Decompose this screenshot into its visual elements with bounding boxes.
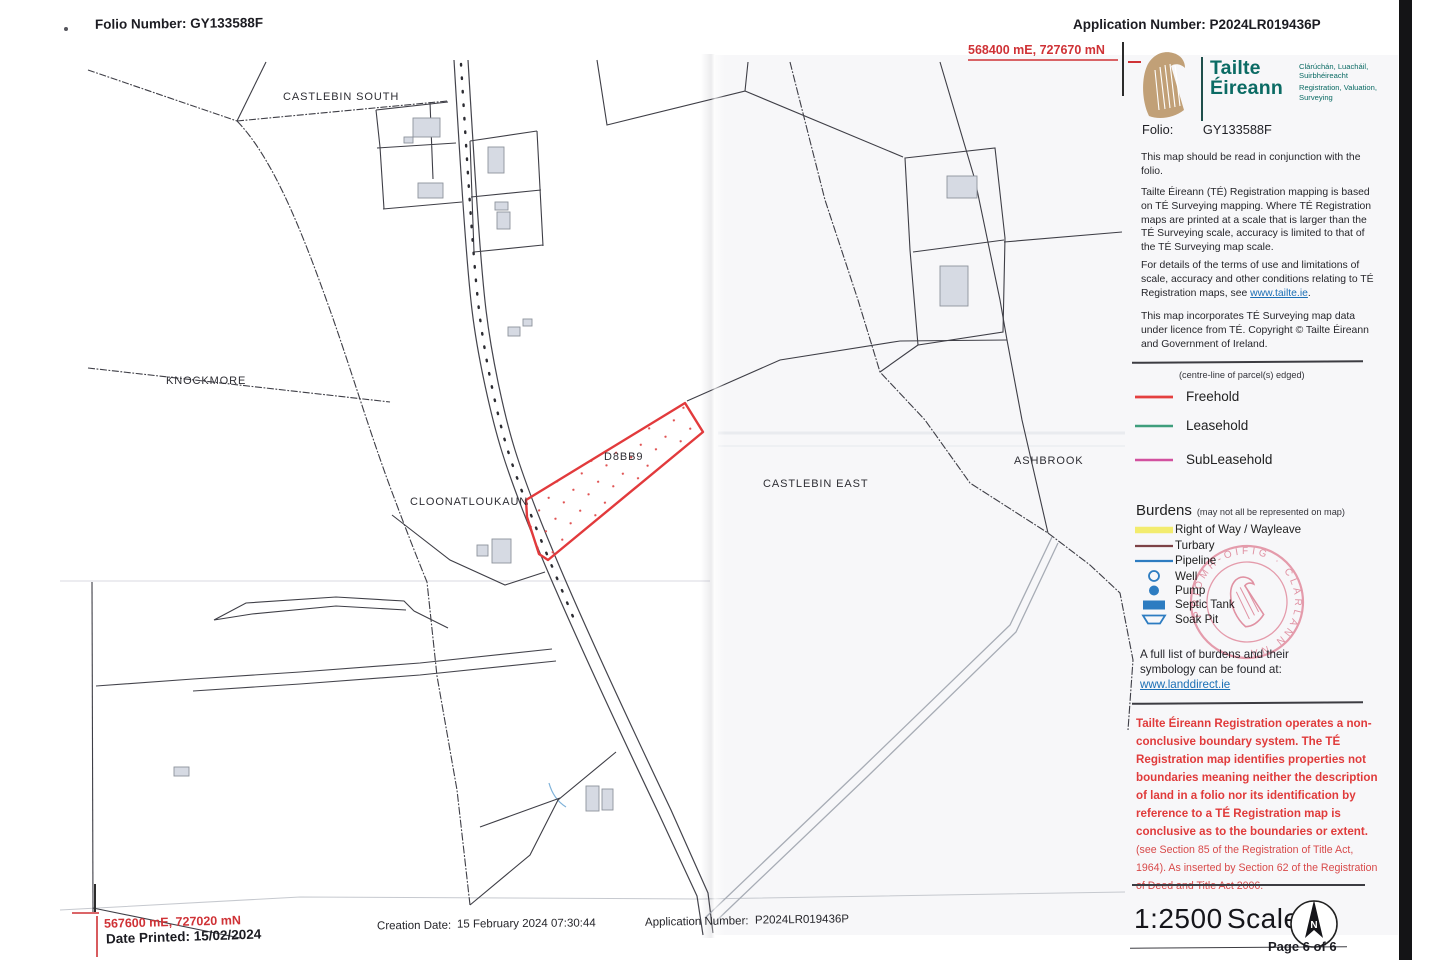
brand-name: Tailte Éireann bbox=[1210, 58, 1283, 98]
footer-application-value: P2024LR019436P bbox=[755, 913, 849, 926]
label-castlebin-south: CASTLEBIN SOUTH bbox=[283, 91, 399, 103]
legend-row-leasehold: Leasehold bbox=[1133, 418, 1248, 433]
application-number-header: Application Number: P2024LR019436P bbox=[1073, 17, 1321, 32]
burdens-footer-line2: symbology can be found at: bbox=[1140, 662, 1289, 677]
warning-bold-text: Tailte Éireann Registration operates a n… bbox=[1136, 717, 1378, 838]
folio-number-header: Folio Number: GY133588F bbox=[95, 15, 263, 32]
legend-label: SubLeasehold bbox=[1186, 452, 1272, 467]
creation-date-label: Creation Date: bbox=[377, 920, 451, 933]
tagline-irish-1: Clárúchán, Luacháil, bbox=[1299, 62, 1377, 71]
legend-row-freehold: Freehold bbox=[1133, 389, 1239, 404]
legend-label: Leasehold bbox=[1186, 418, 1248, 433]
pump-dot-icon bbox=[1134, 584, 1174, 597]
para-copyright: This map incorporates TÉ Surveying map d… bbox=[1141, 310, 1373, 351]
harp-logo-icon bbox=[1140, 52, 1192, 124]
page-number: Page 6 of 6 bbox=[1268, 939, 1337, 954]
brand-name-line1: Tailte bbox=[1210, 58, 1283, 78]
para-conjunction: This map should be read in conjunction w… bbox=[1141, 151, 1373, 179]
leasehold-line-icon bbox=[1133, 422, 1175, 430]
registered-parcel: D8BB9 bbox=[526, 403, 703, 560]
creation-date-value: 15 February 2024 07:30:44 bbox=[457, 917, 596, 930]
footer-application-label: Application Number: bbox=[645, 915, 749, 928]
scanned-map-page: D8BB9 CASTLEBIN SOUTH KNOCKMORE CLOONATL… bbox=[0, 0, 1440, 960]
fold-crease bbox=[701, 54, 725, 938]
burdens-title: Burdens bbox=[1136, 502, 1192, 519]
folio-label: Folio: bbox=[1142, 122, 1173, 137]
north-letter: N bbox=[1310, 920, 1317, 931]
soak-pit-trapezoid-icon bbox=[1134, 614, 1174, 626]
para-terms-period: . bbox=[1308, 288, 1311, 299]
parcel-outline bbox=[526, 403, 703, 560]
burden-label: Right of Way / Wayleave bbox=[1175, 523, 1301, 536]
scale-ratio: 1:2500 bbox=[1134, 903, 1223, 935]
landdirect-link[interactable]: www.landdirect.ie bbox=[1140, 677, 1289, 692]
label-knockmore: KNOCKMORE bbox=[166, 375, 246, 387]
right-of-way-line-icon bbox=[1134, 525, 1174, 535]
turbary-line-icon bbox=[1134, 542, 1174, 550]
folio-value: GY133588F bbox=[1203, 122, 1272, 137]
label-castlebin-east: CASTLEBIN EAST bbox=[763, 478, 869, 490]
burdens-footer-line1: A full list of burdens and their bbox=[1140, 647, 1289, 662]
freehold-line-icon bbox=[1133, 393, 1175, 401]
divider bbox=[1132, 884, 1365, 886]
brand-tagline: Clárúchán, Luacháil, Suirbhéireacht Regi… bbox=[1299, 62, 1377, 102]
folio-row: Folio: GY133588F bbox=[1142, 122, 1272, 137]
burden-row-right-of-way: Right of Way / Wayleave bbox=[1133, 523, 1301, 536]
septic-tank-rect-icon bbox=[1134, 599, 1174, 611]
label-cloonatloukaun: CLOONATLOUKAUN bbox=[410, 496, 528, 508]
boundary-warning: Tailte Éireann Registration operates a n… bbox=[1136, 714, 1379, 894]
centre-line-note: (centre-line of parcel(s) edged) bbox=[1179, 370, 1305, 380]
subleasehold-line-icon bbox=[1133, 456, 1175, 464]
tagline-en-2: Surveying bbox=[1299, 93, 1377, 102]
legend-row-subleasehold: SubLeasehold bbox=[1133, 452, 1272, 467]
burdens-note: (may not all be represented on map) bbox=[1197, 507, 1345, 517]
parcel-label: D8BB9 bbox=[604, 451, 643, 463]
tailte-link[interactable]: www.tailte.ie bbox=[1250, 288, 1308, 299]
tagline-en-1: Registration, Valuation, bbox=[1299, 83, 1377, 92]
logo-divider bbox=[1201, 57, 1203, 121]
brand-name-line2: Éireann bbox=[1210, 78, 1283, 98]
stamp-harp-icon bbox=[1225, 574, 1266, 629]
para-registration: Tailte Éireann (TÉ) Registration mapping… bbox=[1141, 186, 1379, 255]
pipeline-line-icon bbox=[1134, 557, 1174, 565]
para-terms: For details of the terms of use and limi… bbox=[1141, 259, 1379, 300]
well-circle-icon bbox=[1134, 569, 1174, 583]
scanner-edge bbox=[1399, 0, 1412, 960]
label-ashbrook: ASHBROOK bbox=[1014, 455, 1084, 467]
tagline-irish-2: Suirbhéireacht bbox=[1299, 71, 1377, 80]
burdens-footer: A full list of burdens and their symbolo… bbox=[1140, 647, 1289, 692]
legend-label: Freehold bbox=[1186, 389, 1239, 404]
burdens-header: Burdens (may not all be represented on m… bbox=[1136, 502, 1345, 519]
coordinate-top-right: 568400 mE, 727670 mN bbox=[968, 43, 1105, 57]
